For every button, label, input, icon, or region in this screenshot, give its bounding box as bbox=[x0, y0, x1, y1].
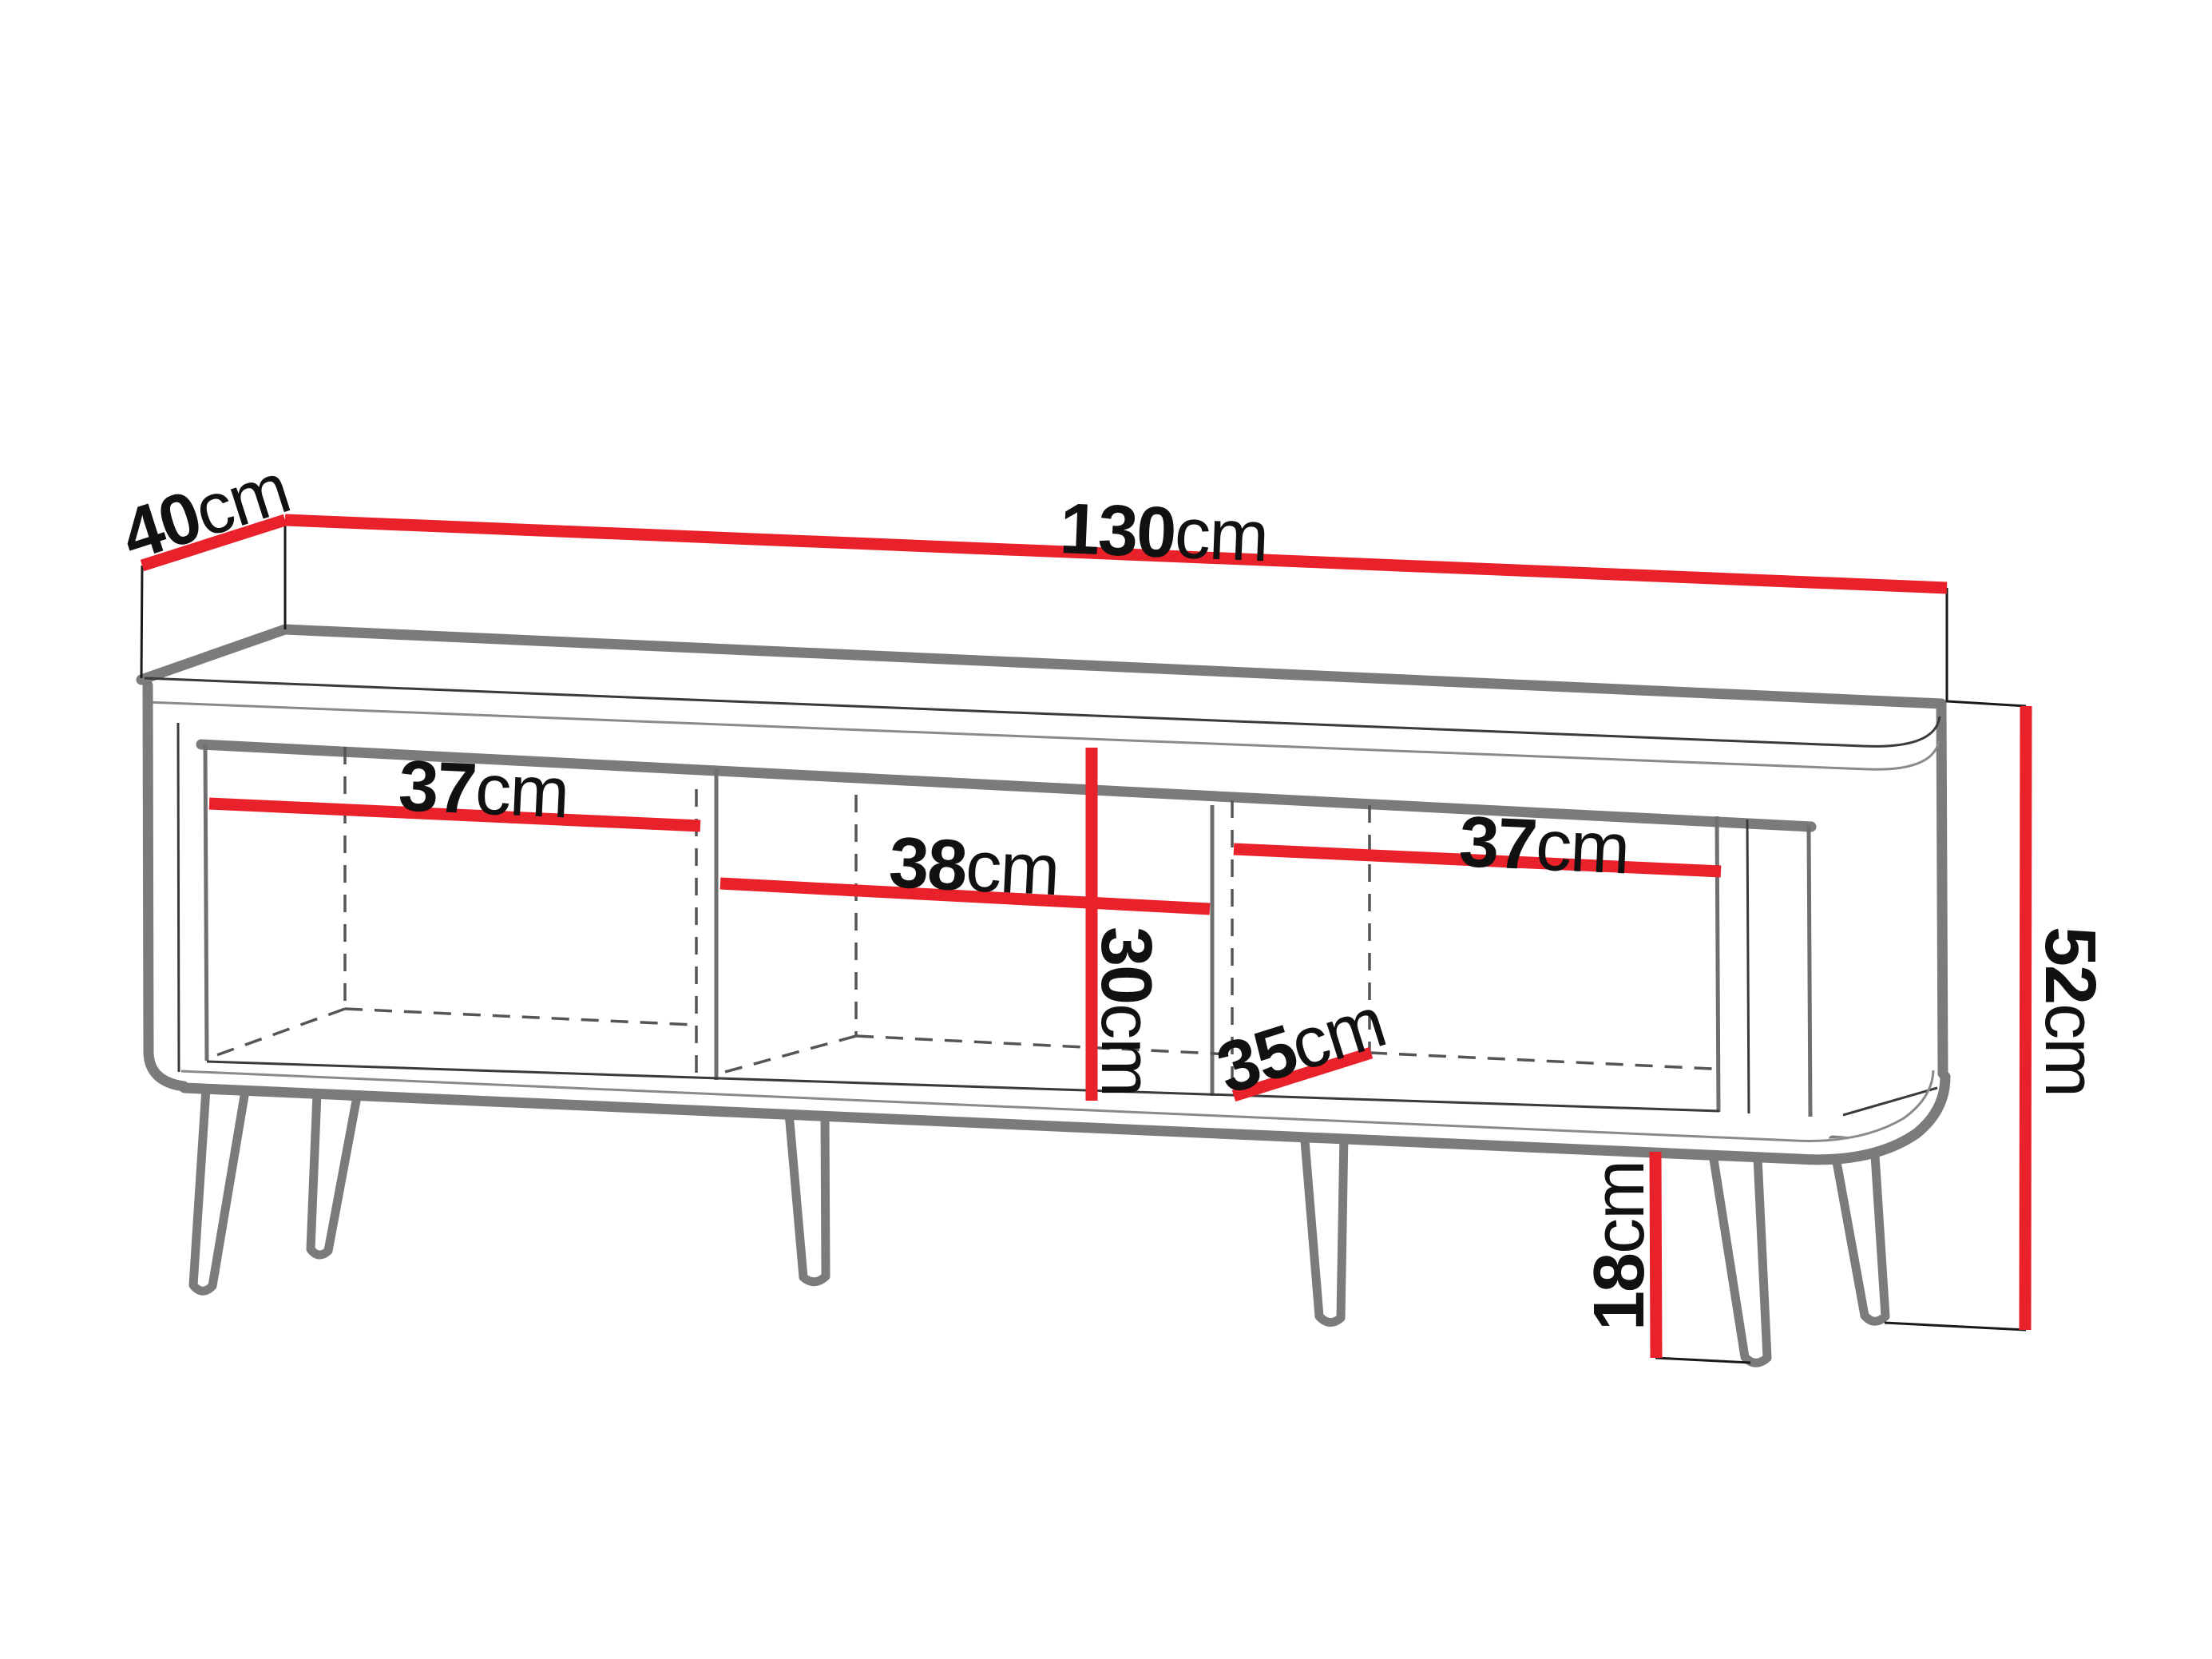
top-back-left-edges bbox=[141, 629, 1941, 704]
label-left-compartment-width: 37cm bbox=[397, 746, 569, 834]
leg-height-value: 18 bbox=[1580, 1254, 1659, 1331]
height-unit: cm bbox=[2030, 1003, 2110, 1096]
left-compartment-value: 37 bbox=[397, 746, 478, 829]
height-dimension-line bbox=[2025, 706, 2026, 1330]
leg-back-left bbox=[311, 1093, 357, 1255]
leg-back-middle bbox=[1304, 1131, 1344, 1323]
right-panel-inner-line bbox=[1747, 820, 1749, 1113]
leg-front-right bbox=[1713, 1154, 1767, 1363]
right-compartment-value: 37 bbox=[1457, 802, 1538, 885]
right-interior-wall-edge bbox=[1717, 816, 1718, 1112]
left-interior-wall-edge bbox=[205, 744, 207, 1061]
width-extension-line bbox=[1947, 588, 2026, 706]
right-outer-edge bbox=[1941, 704, 1943, 1074]
middle-compartment-value: 38 bbox=[887, 823, 968, 907]
label-right-compartment-width: 37cm bbox=[1457, 802, 1630, 890]
compartment-height-unit: cm bbox=[1086, 1003, 1166, 1096]
label-height: 52cm bbox=[2030, 927, 2110, 1096]
left-compartment-unit: cm bbox=[474, 749, 569, 833]
middle-compartment-unit: cm bbox=[964, 827, 1060, 911]
diagram-canvas: 40cm 130cm 37cm 38cm 37cm 30cm 35cm 52cm… bbox=[0, 0, 2212, 1659]
label-leg-height: 18cm bbox=[1580, 1161, 1659, 1331]
front-floor-line bbox=[1655, 1358, 1750, 1363]
depth-extension-line bbox=[141, 566, 142, 678]
label-middle-compartment-width: 38cm bbox=[887, 823, 1060, 911]
label-depth: 40cm bbox=[113, 448, 298, 576]
leg-back-right bbox=[1833, 1140, 1885, 1321]
comp2-bottom-diagonal bbox=[725, 1036, 856, 1072]
label-compartment-depth: 35cm bbox=[1208, 982, 1393, 1109]
cabinet-outline bbox=[141, 629, 1945, 1363]
leg-front-left bbox=[193, 1089, 245, 1291]
height-value: 52 bbox=[2030, 927, 2110, 1003]
width-value: 130 bbox=[1058, 489, 1176, 574]
comp1-back-bottom-edge bbox=[345, 1009, 695, 1025]
label-width: 130cm bbox=[1058, 489, 1269, 577]
width-unit: cm bbox=[1173, 494, 1269, 577]
leg-height-unit: cm bbox=[1580, 1161, 1659, 1254]
back-floor-line bbox=[1885, 1323, 2026, 1330]
left-panel-inner-line bbox=[178, 723, 179, 1072]
right-compartment-unit: cm bbox=[1534, 805, 1630, 889]
leg-front-middle bbox=[789, 1113, 826, 1282]
comp3-back-bottom-edge bbox=[1370, 1053, 1712, 1069]
comp1-bottom-diagonal bbox=[210, 1009, 345, 1058]
comp2-back-bottom-edge bbox=[856, 1036, 1231, 1054]
compartment-height-value: 30 bbox=[1086, 927, 1166, 1003]
label-compartment-height: 30cm bbox=[1086, 927, 1166, 1096]
tv-stand-dimension-diagram: 40cm 130cm 37cm 38cm 37cm 30cm 35cm 52cm… bbox=[0, 0, 2212, 1659]
bottom-band-fill bbox=[183, 1075, 1941, 1151]
right-front-corner-edge bbox=[1809, 825, 1810, 1117]
